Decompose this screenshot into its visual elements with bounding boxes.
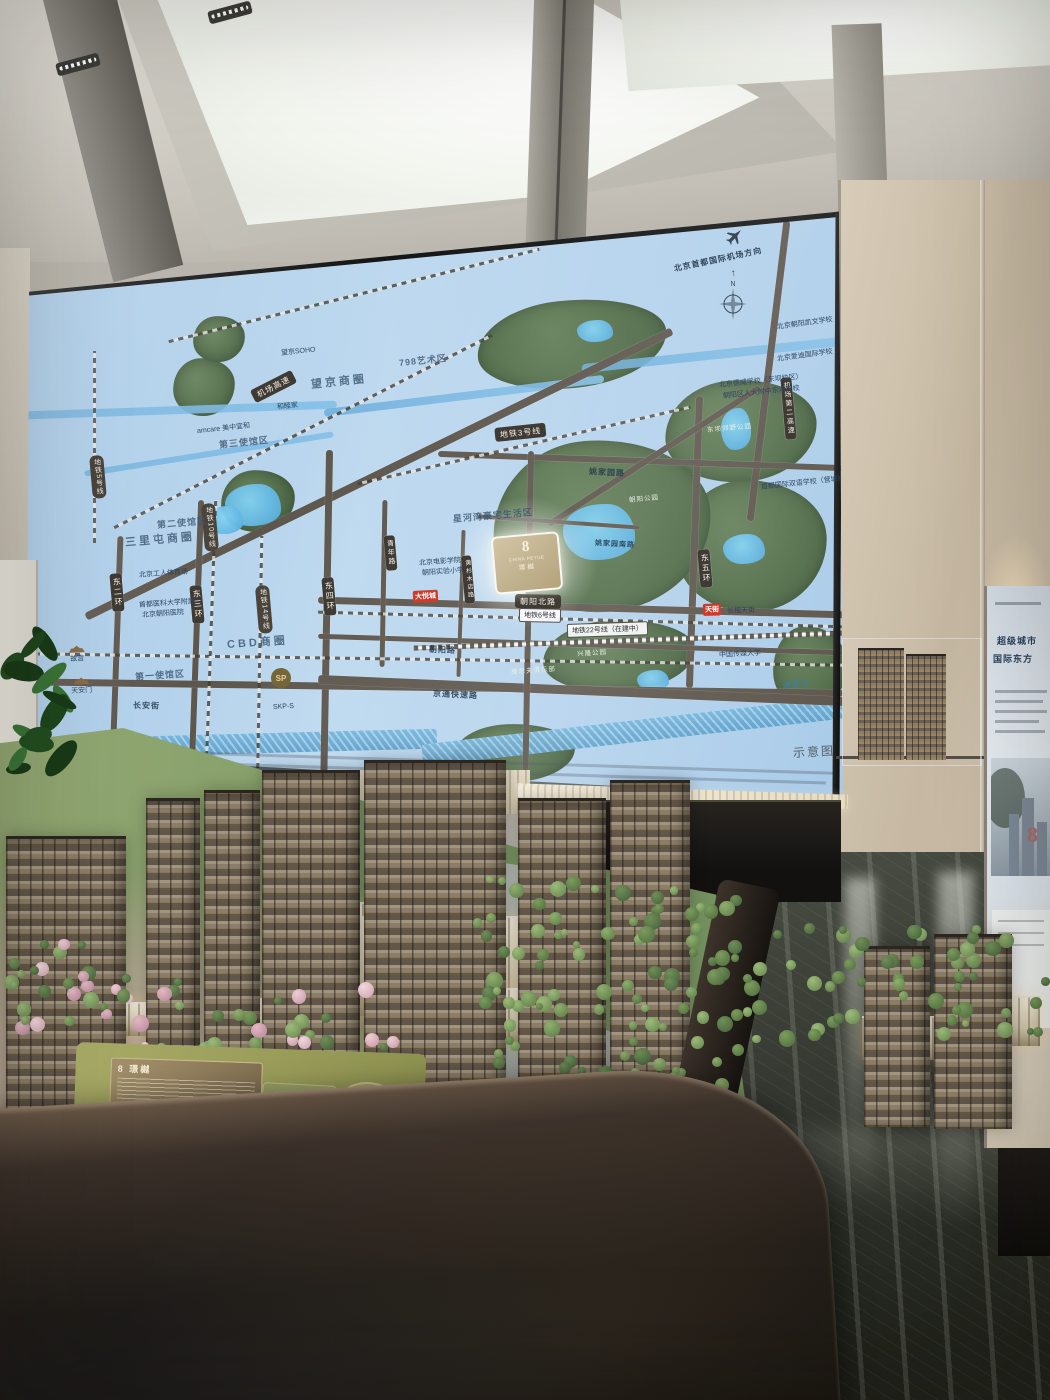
map-label: 朝阳北路 — [515, 594, 561, 609]
map-label: 东四环 — [321, 577, 337, 616]
model-tree — [559, 1062, 571, 1074]
model-tree — [122, 974, 131, 983]
map-label: 长安街 — [133, 700, 160, 711]
model-tree — [743, 1007, 752, 1016]
map-label: 朝阳路 — [429, 644, 456, 656]
model-tree — [753, 962, 767, 976]
plaque-logo: 8 — [117, 1064, 124, 1074]
kiosk-brand-mark: 8 — [1027, 822, 1038, 848]
model-tree — [493, 987, 501, 995]
mini-tower-model — [906, 654, 946, 760]
model-tree — [251, 1023, 266, 1038]
airplane-icon — [721, 222, 749, 250]
led-map-screen: 东二环东三环东四环东五环青年路黄杉木店路机场第二高速地铁5号线地铁10号线地铁1… — [25, 208, 843, 806]
project-parcel-marker: 8 CHINA PEYUE 璟樾 — [491, 531, 564, 595]
model-tree — [697, 1011, 710, 1024]
kiosk-image-building — [1009, 814, 1019, 876]
model-tree — [999, 933, 1013, 947]
map-label: 机场高速 — [250, 370, 297, 403]
map-label: 和睦家 — [276, 400, 298, 412]
map-label: 地铁5号线 — [89, 455, 107, 499]
model-tree — [962, 1020, 969, 1027]
model-tree — [960, 942, 975, 957]
north-arrow-icon: ↑ — [730, 268, 737, 280]
model-tree — [473, 918, 483, 928]
model-tree — [629, 1021, 638, 1030]
model-tree — [685, 907, 699, 921]
model-tree — [486, 913, 496, 923]
model-tree — [967, 932, 979, 944]
model-tree — [808, 1029, 820, 1041]
mini-tower-model — [858, 648, 904, 760]
model-tree — [997, 1022, 1012, 1037]
map-label: SKP-S — [273, 703, 294, 711]
svg-text:N: N — [730, 281, 735, 288]
map-label: 东二环 — [109, 573, 125, 612]
model-tree — [503, 997, 514, 1008]
model-tree — [40, 940, 49, 949]
model-tree — [64, 1016, 74, 1026]
model-tree — [63, 978, 74, 989]
model-tree — [285, 1022, 301, 1038]
model-tree — [132, 1015, 149, 1032]
map-label: 姚家园路 — [589, 466, 626, 479]
airport-direction-group: 北京首都国际机场方向 ↑ N — [673, 226, 823, 346]
model-tree — [715, 950, 730, 965]
model-tree — [504, 1019, 516, 1031]
schematic-note: 示意图 — [793, 742, 836, 761]
model-tree — [689, 948, 698, 957]
model-tree — [292, 989, 307, 1004]
model-tree — [954, 971, 965, 982]
model-tree — [531, 924, 545, 938]
compass-rose-icon: N — [713, 280, 753, 324]
kiosk-headline-1: 超级城市 — [997, 634, 1037, 647]
kiosk-stand — [998, 1146, 1050, 1256]
map-label: 地铁22号线（在建中） — [567, 621, 648, 638]
model-tree — [844, 959, 855, 970]
showroom-photo: 东二环东三环东四环东五环青年路黄杉木店路机场第二高速地铁5号线地铁10号线地铁1… — [0, 0, 1050, 1400]
model-tree — [486, 876, 493, 883]
model-tree — [638, 926, 655, 943]
model-tree — [855, 937, 870, 952]
model-tree — [857, 977, 867, 987]
model-tree — [615, 885, 631, 901]
model-tree — [719, 901, 735, 917]
model-tree — [833, 1013, 844, 1024]
model-tree — [622, 980, 634, 992]
map-label: 长楹天街 — [727, 605, 755, 616]
model-tree — [620, 1051, 630, 1061]
model-tree — [881, 956, 894, 969]
model-tree — [686, 935, 700, 949]
map-label: CBD商圈 — [226, 632, 288, 652]
model-tree — [910, 955, 924, 969]
model-tree — [632, 994, 642, 1004]
ceiling-beam — [526, 0, 595, 247]
model-tree — [554, 1003, 568, 1017]
model-tree — [117, 989, 131, 1003]
map-metro — [256, 536, 264, 798]
model-tree — [536, 1003, 543, 1010]
model-tree — [654, 904, 664, 914]
model-tree — [659, 1023, 667, 1031]
map-metro — [93, 351, 96, 543]
model-tree — [481, 930, 492, 941]
map-label: 北京工人体育场 — [139, 567, 189, 580]
model-tree — [947, 1015, 957, 1025]
model-tree — [67, 987, 81, 1001]
map-label: 望京商圈 — [310, 370, 367, 392]
model-tree — [899, 991, 908, 1000]
kiosk-paragraph-line — [995, 700, 1043, 703]
map-label: 兴隆公园 — [577, 646, 608, 658]
model-tree — [928, 993, 944, 1009]
model-tree — [103, 1009, 112, 1018]
map-label: 地铁14号线 — [255, 585, 273, 634]
model-tree — [779, 1030, 795, 1046]
model-tree — [544, 1020, 561, 1037]
kiosk-paragraph-line — [995, 690, 1047, 693]
model-tree — [509, 883, 524, 898]
model-tree — [707, 969, 723, 985]
map-park — [191, 314, 247, 364]
model-tree — [678, 1003, 689, 1014]
map-label: 姚家园南路 — [595, 538, 635, 550]
map-label: 北京朝阳医院 — [142, 607, 185, 620]
model-tree — [21, 1016, 29, 1024]
kiosk-city-image — [991, 758, 1050, 876]
model-tree — [573, 948, 585, 960]
model-tree — [83, 992, 99, 1008]
model-tree — [594, 1004, 604, 1014]
kiosk-paragraph-line — [995, 710, 1047, 713]
model-tree — [233, 1009, 245, 1021]
map-label: 地铁6号线 — [519, 608, 561, 623]
kiosk-image-tree — [991, 768, 1025, 828]
model-tree — [907, 925, 922, 940]
model-tree — [893, 978, 905, 990]
map-label: 地铁3号线 — [494, 423, 547, 442]
plaque-title: 8 璟樾 — [117, 1062, 255, 1080]
model-tree — [601, 927, 614, 940]
model-tree — [952, 1006, 960, 1014]
model-tree — [17, 1002, 32, 1017]
model-tree — [1041, 977, 1050, 986]
kiosk-nav-bar — [995, 602, 1041, 605]
display-pedestal — [836, 756, 986, 909]
model-table-rim — [0, 1059, 859, 1400]
map-label: 798艺术区 — [398, 351, 447, 369]
map-label: SP — [271, 668, 291, 688]
airport-direction-label: 北京首都国际机场方向 — [673, 245, 763, 274]
map-label: 望京SOHO — [280, 344, 315, 358]
kiosk-image-building — [1037, 822, 1047, 876]
model-tree — [731, 954, 739, 962]
kiosk-paragraph-line — [995, 730, 1045, 733]
model-tree — [9, 958, 20, 969]
map-label: 青年路 — [383, 535, 397, 571]
map-lake — [723, 534, 765, 564]
map-road — [380, 500, 388, 667]
indoor-plant — [0, 618, 82, 808]
model-tree — [157, 987, 172, 1002]
model-tree — [175, 1001, 184, 1010]
plaque-name: 璟樾 — [129, 1064, 151, 1075]
model-tree — [752, 1000, 767, 1015]
kiosk-paragraph-line — [995, 720, 1039, 723]
model-tree — [512, 947, 525, 960]
map-river — [84, 431, 334, 476]
kiosk-headline-2: 国际东方 — [993, 652, 1033, 665]
map-label: amcare 美中宜和 — [196, 420, 250, 436]
model-tree — [845, 1009, 860, 1024]
model-tree — [937, 1027, 951, 1041]
model-tree — [533, 898, 546, 911]
map-label: 大悦城 — [413, 590, 439, 603]
model-tree — [786, 960, 796, 970]
model-tree — [686, 987, 697, 998]
map-label: 天街 — [703, 603, 721, 616]
model-tower — [610, 780, 690, 1117]
model-tree — [839, 926, 847, 934]
model-tree — [629, 917, 638, 926]
map-label: 通惠河 — [783, 678, 811, 691]
map-label: 京通快速路 — [433, 688, 479, 701]
map-label: 三里屯商圈 — [124, 528, 195, 550]
model-tree — [38, 985, 51, 998]
model-tree — [505, 1036, 514, 1045]
model-tree — [985, 941, 1000, 956]
model-tree — [535, 961, 544, 970]
map-lake — [577, 320, 613, 342]
map-label: 中国传媒大学 — [719, 648, 761, 660]
model-tree — [691, 923, 702, 934]
model-tree — [629, 1037, 638, 1046]
model-tree — [387, 1036, 398, 1047]
